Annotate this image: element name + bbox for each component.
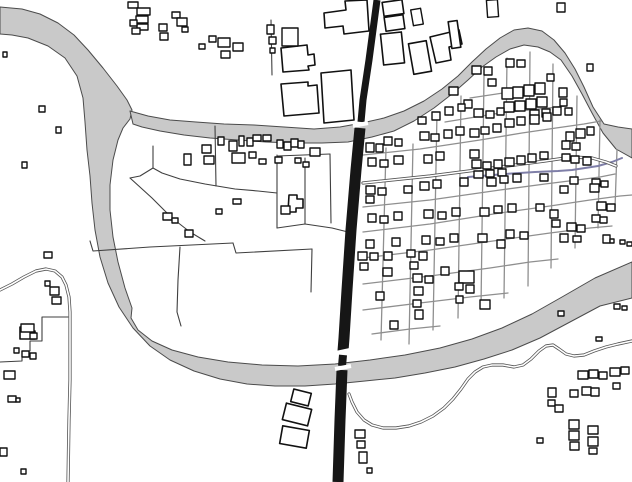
building	[536, 204, 544, 211]
building	[494, 160, 502, 168]
building	[218, 38, 230, 47]
building	[560, 234, 568, 242]
building	[282, 28, 298, 46]
large-building	[324, 0, 369, 34]
building	[592, 215, 600, 222]
building	[418, 117, 426, 124]
building	[269, 37, 276, 44]
building	[407, 250, 415, 257]
building	[425, 276, 433, 283]
building	[480, 208, 489, 216]
building	[505, 158, 514, 166]
building	[445, 107, 453, 115]
street-line	[381, 148, 386, 340]
building	[163, 213, 172, 220]
building	[478, 234, 487, 242]
building	[520, 232, 528, 239]
parcel-line	[330, 154, 331, 223]
building	[553, 107, 561, 115]
building	[8, 396, 16, 402]
building	[590, 184, 599, 192]
building	[578, 371, 588, 379]
building	[540, 174, 548, 181]
building	[394, 156, 403, 164]
building	[535, 83, 545, 94]
building	[415, 310, 423, 319]
building	[562, 141, 570, 149]
building	[552, 220, 560, 227]
building	[438, 212, 446, 219]
building	[22, 162, 27, 168]
building	[517, 117, 525, 125]
building	[204, 156, 214, 164]
building	[500, 176, 508, 183]
building	[583, 157, 591, 165]
building	[513, 87, 523, 98]
building	[128, 2, 138, 8]
building	[559, 88, 567, 97]
building	[378, 188, 386, 195]
parcel-line	[130, 178, 205, 241]
building	[380, 216, 388, 223]
building	[573, 236, 581, 242]
building	[600, 217, 607, 223]
building	[259, 159, 266, 164]
building	[547, 74, 554, 81]
large-building	[280, 426, 310, 448]
building	[253, 135, 261, 141]
building	[39, 106, 45, 112]
building	[414, 287, 423, 295]
building	[368, 158, 376, 166]
building	[459, 271, 474, 283]
building	[239, 136, 244, 146]
building	[366, 240, 374, 248]
building	[380, 160, 388, 167]
building	[589, 370, 598, 378]
building	[557, 3, 565, 12]
building	[493, 124, 501, 132]
building	[267, 25, 274, 34]
building	[543, 113, 551, 121]
building	[431, 134, 439, 141]
building	[505, 119, 514, 127]
street-line	[551, 64, 553, 268]
building	[622, 306, 627, 310]
building	[202, 145, 211, 153]
building	[275, 157, 282, 163]
building	[494, 206, 502, 213]
building	[218, 137, 224, 145]
building	[209, 36, 216, 42]
map-svg	[0, 0, 632, 482]
building	[229, 141, 237, 151]
building	[370, 253, 378, 260]
building	[517, 60, 525, 67]
building	[497, 108, 504, 115]
building	[470, 150, 479, 158]
building	[587, 127, 594, 135]
building	[4, 371, 15, 379]
building	[366, 186, 375, 194]
building	[298, 141, 304, 148]
building	[528, 154, 536, 162]
building	[232, 153, 245, 163]
building	[3, 52, 7, 57]
building	[455, 283, 463, 290]
building	[621, 367, 629, 374]
building	[472, 160, 481, 168]
building	[284, 142, 291, 150]
building	[368, 214, 376, 222]
building	[436, 152, 444, 160]
building	[366, 143, 374, 152]
building	[537, 438, 543, 443]
building	[177, 18, 187, 26]
building	[410, 262, 418, 269]
building	[411, 8, 424, 25]
building	[599, 372, 607, 379]
building	[484, 67, 492, 75]
building	[424, 155, 432, 163]
building	[456, 296, 463, 303]
building	[569, 431, 579, 440]
building	[30, 353, 36, 359]
building	[481, 127, 489, 134]
building	[474, 171, 483, 178]
building	[614, 304, 620, 309]
building	[587, 64, 593, 71]
building	[486, 111, 494, 118]
building	[597, 202, 606, 210]
building	[610, 368, 620, 376]
parcel-line	[177, 247, 181, 326]
building	[14, 348, 19, 353]
building	[620, 240, 625, 244]
building	[390, 321, 398, 329]
parcel-line	[130, 146, 153, 178]
building	[281, 206, 290, 214]
building	[596, 337, 602, 341]
building	[530, 115, 539, 124]
building	[395, 139, 402, 146]
building	[424, 210, 433, 218]
building	[172, 12, 180, 18]
parcel-line	[233, 243, 312, 253]
parcel-line	[277, 224, 352, 233]
building	[21, 469, 26, 474]
building	[548, 388, 556, 397]
large-building	[291, 389, 312, 406]
building	[56, 127, 61, 133]
building	[498, 169, 506, 176]
large-building	[408, 41, 431, 75]
large-building	[281, 45, 315, 72]
building	[486, 170, 494, 177]
street-line	[372, 326, 440, 334]
building	[295, 158, 301, 163]
building	[497, 240, 505, 248]
building	[607, 204, 615, 211]
large-building	[321, 70, 354, 123]
building	[570, 177, 578, 184]
building	[310, 148, 320, 156]
building	[488, 79, 496, 86]
building	[357, 441, 365, 448]
building	[413, 274, 422, 282]
building	[376, 292, 384, 300]
main-road-segment	[338, 370, 342, 482]
building	[452, 208, 460, 216]
building	[277, 140, 283, 148]
building	[221, 51, 230, 58]
large-building	[281, 82, 319, 116]
building	[185, 230, 193, 237]
building	[562, 154, 570, 161]
street-line	[433, 112, 437, 330]
building	[540, 152, 548, 159]
large-building	[380, 32, 404, 65]
street-line	[615, 150, 617, 208]
building	[589, 448, 597, 454]
building	[247, 138, 253, 146]
building	[591, 388, 599, 396]
building	[216, 209, 222, 214]
large-building	[382, 0, 404, 16]
building	[506, 59, 514, 67]
building	[515, 101, 525, 111]
building	[383, 268, 392, 276]
river-water	[0, 7, 632, 386]
building	[613, 383, 620, 389]
building	[555, 405, 563, 412]
river-polygon	[0, 7, 632, 386]
building	[487, 178, 496, 186]
building	[249, 152, 256, 158]
building	[572, 143, 580, 150]
building	[548, 400, 555, 406]
building	[460, 178, 468, 186]
building	[576, 129, 585, 138]
street-line	[409, 144, 413, 344]
building	[582, 387, 591, 395]
building	[384, 252, 392, 260]
building	[480, 300, 490, 309]
building	[560, 99, 567, 106]
building	[565, 108, 572, 115]
building	[526, 99, 536, 109]
building	[199, 44, 205, 49]
building	[130, 20, 137, 26]
building	[419, 252, 427, 260]
building	[159, 24, 167, 31]
building	[513, 174, 521, 182]
building	[571, 156, 579, 163]
building	[472, 66, 481, 74]
building	[16, 398, 20, 402]
street-line	[598, 120, 600, 228]
building	[182, 27, 188, 32]
parcel-line	[153, 168, 277, 193]
building	[420, 182, 429, 190]
building	[560, 186, 568, 193]
building	[263, 135, 271, 141]
building	[433, 180, 441, 188]
building	[569, 420, 579, 429]
building	[384, 137, 392, 145]
building	[422, 236, 430, 244]
building	[376, 144, 383, 152]
building	[50, 287, 59, 295]
map-canvas[interactable]	[0, 0, 632, 482]
building	[441, 267, 449, 275]
building	[466, 285, 474, 293]
building	[524, 85, 534, 96]
building	[444, 130, 452, 138]
parcel-line	[311, 249, 312, 292]
building	[567, 223, 576, 231]
building	[30, 333, 37, 339]
building	[502, 88, 513, 99]
building	[436, 238, 444, 245]
main-road-segment	[343, 128, 360, 351]
building	[0, 448, 7, 456]
building	[449, 87, 458, 95]
building	[404, 186, 412, 193]
building	[537, 97, 547, 107]
building	[233, 43, 243, 51]
building	[233, 199, 241, 204]
building	[508, 204, 516, 212]
building	[367, 468, 372, 473]
building	[160, 33, 168, 40]
building	[172, 218, 178, 223]
building	[21, 324, 34, 332]
building	[558, 311, 564, 316]
building	[588, 426, 598, 434]
building	[474, 109, 483, 117]
building	[483, 162, 491, 169]
building	[359, 452, 367, 463]
building	[355, 430, 365, 438]
building	[588, 437, 598, 446]
building	[504, 102, 514, 112]
building	[550, 210, 558, 218]
building	[413, 300, 421, 307]
building	[270, 48, 275, 53]
building	[610, 239, 614, 243]
building	[470, 129, 479, 137]
building	[506, 230, 514, 238]
building	[22, 351, 29, 357]
building	[450, 234, 458, 242]
building	[458, 104, 465, 111]
building	[291, 139, 298, 147]
building	[366, 196, 374, 203]
building	[570, 442, 579, 450]
building	[420, 132, 429, 140]
building	[132, 28, 140, 34]
main-road-segment	[342, 355, 343, 366]
large-building	[384, 15, 405, 32]
building	[566, 132, 574, 141]
building	[627, 242, 632, 246]
building	[45, 281, 50, 286]
building	[601, 181, 608, 187]
building	[570, 390, 578, 397]
building	[394, 212, 402, 220]
building	[360, 263, 368, 270]
building	[136, 16, 148, 23]
building	[303, 162, 309, 167]
building	[432, 112, 440, 120]
building	[486, 0, 498, 17]
building	[603, 235, 610, 243]
building	[137, 8, 150, 15]
building	[392, 238, 400, 246]
building	[44, 252, 52, 258]
building	[52, 297, 61, 304]
building	[184, 154, 191, 165]
parcel-line	[277, 154, 330, 156]
building	[577, 225, 585, 232]
building	[456, 127, 464, 135]
building	[517, 156, 525, 164]
building	[358, 252, 367, 260]
